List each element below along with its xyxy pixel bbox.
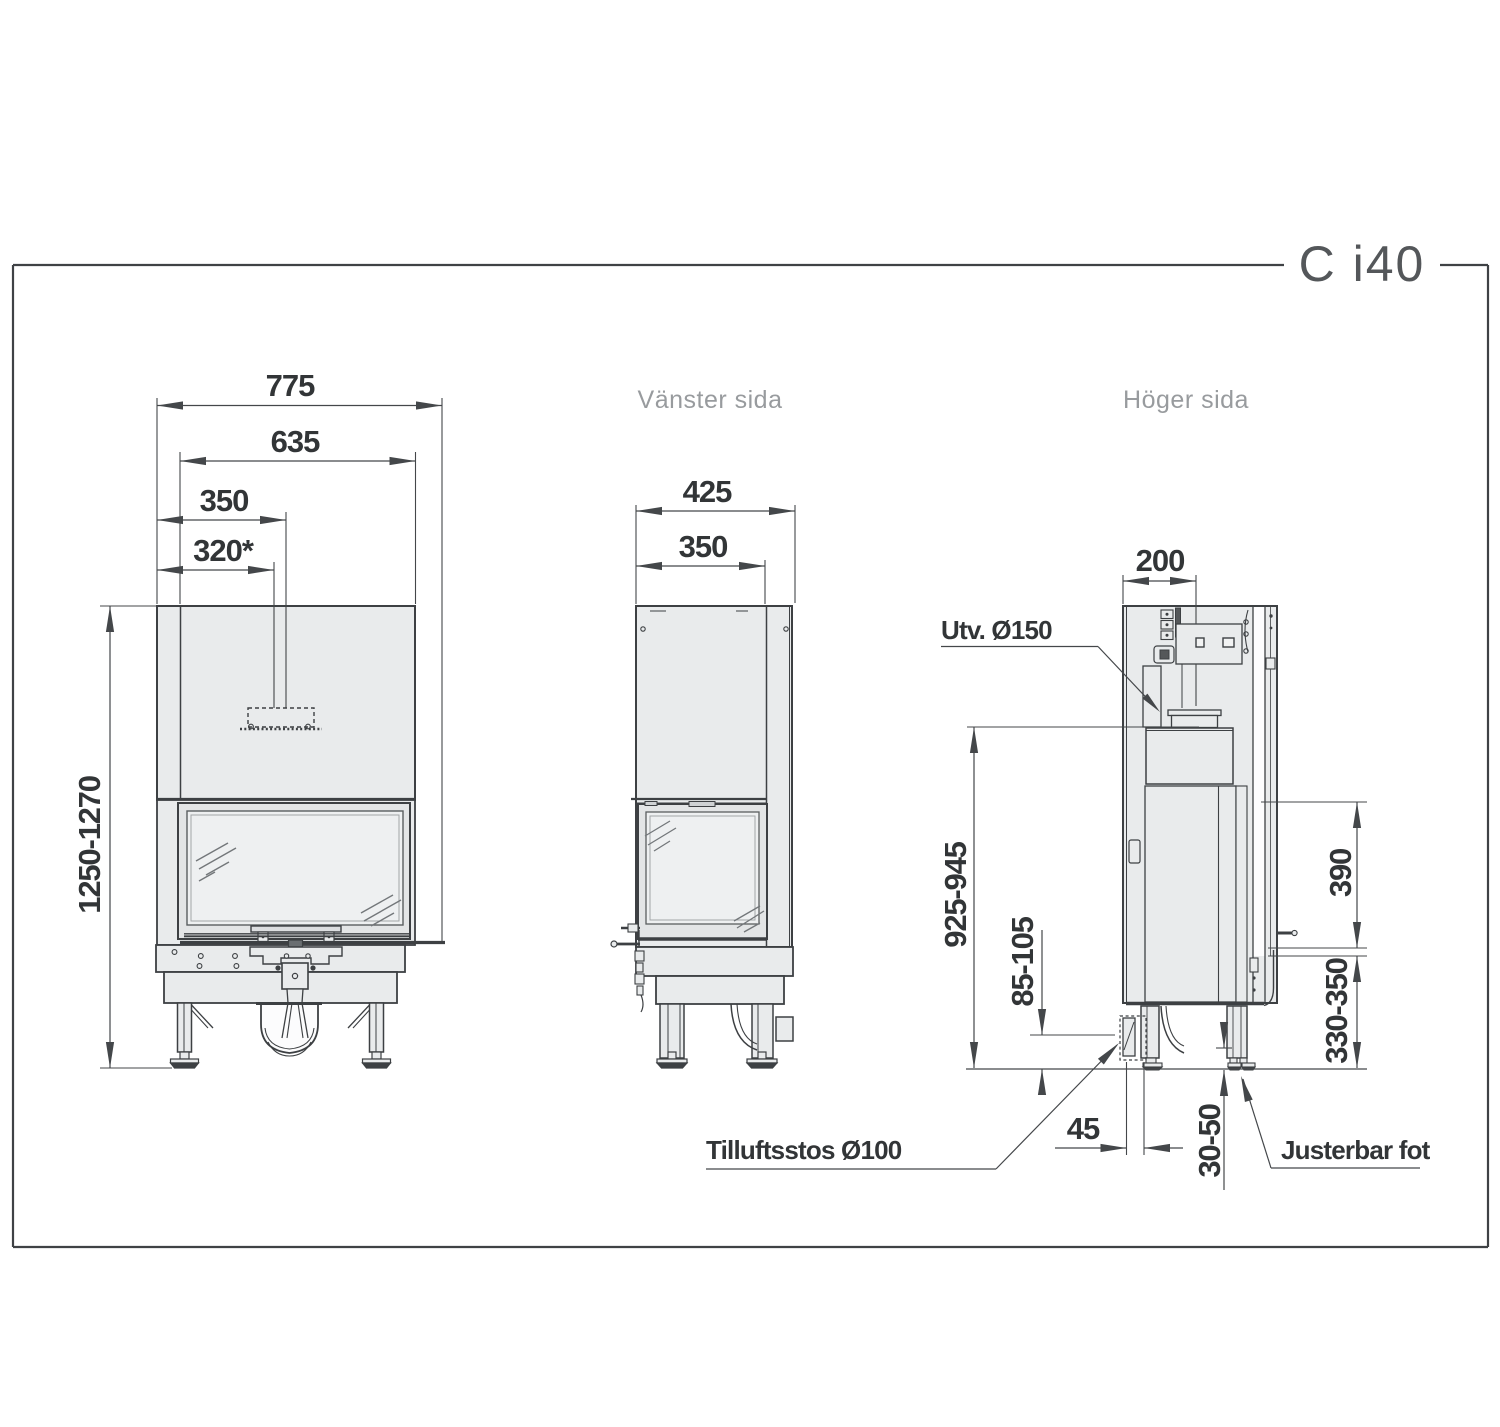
svg-text:635: 635 (271, 424, 320, 459)
svg-text:775: 775 (266, 368, 315, 403)
svg-text:Höger sida: Höger sida (1123, 386, 1249, 414)
svg-text:925-945: 925-945 (938, 841, 973, 947)
svg-text:425: 425 (683, 474, 732, 509)
svg-text:85-105: 85-105 (1005, 916, 1040, 1006)
svg-text:320*: 320* (193, 533, 255, 568)
svg-text:C i40: C i40 (1299, 236, 1426, 292)
svg-text:200: 200 (1136, 543, 1185, 578)
svg-text:330-350: 330-350 (1319, 958, 1354, 1063)
svg-text:30-50: 30-50 (1192, 1104, 1227, 1177)
svg-text:Tilluftsstos Ø100: Tilluftsstos Ø100 (706, 1135, 902, 1165)
svg-text:350: 350 (679, 529, 728, 564)
svg-text:Vänster sida: Vänster sida (638, 386, 783, 414)
svg-text:Justerbar fot: Justerbar fot (1281, 1135, 1431, 1165)
svg-text:45: 45 (1067, 1111, 1100, 1146)
svg-text:Utv. Ø150: Utv. Ø150 (941, 615, 1052, 645)
svg-text:1250-1270: 1250-1270 (72, 776, 107, 913)
svg-text:350: 350 (200, 483, 249, 518)
svg-text:390: 390 (1323, 849, 1358, 897)
